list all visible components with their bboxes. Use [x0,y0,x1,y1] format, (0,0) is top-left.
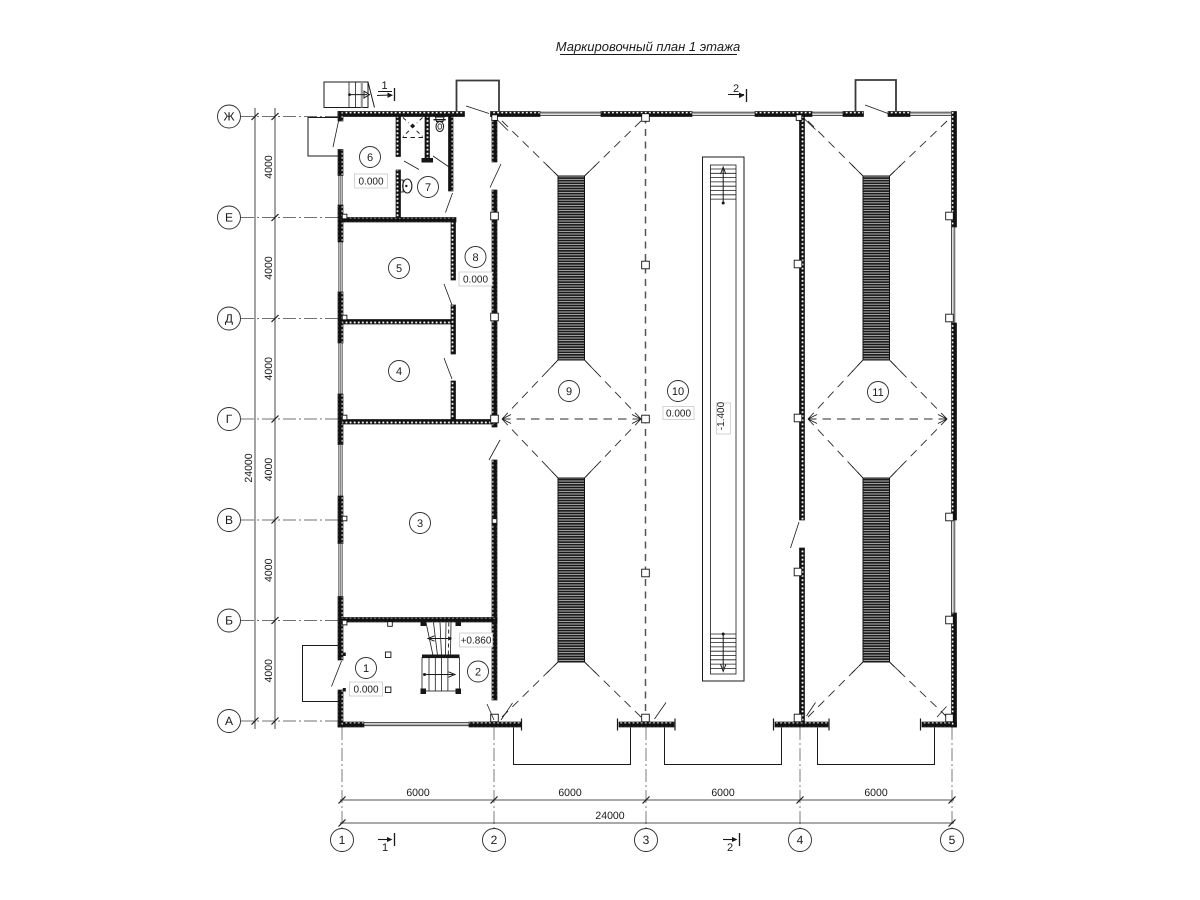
svg-text:6000: 6000 [406,787,430,799]
svg-text:2: 2 [733,83,739,95]
svg-text:1: 1 [339,833,346,847]
svg-text:Е: Е [225,211,233,225]
svg-text:А: А [225,714,233,728]
svg-text:В: В [225,513,233,527]
svg-text:24000: 24000 [243,453,255,482]
svg-text:0.000: 0.000 [463,275,488,286]
svg-text:Г: Г [226,412,233,426]
svg-text:11: 11 [872,387,883,399]
svg-text:Ж: Ж [223,110,234,124]
svg-text:+0.860: +0.860 [461,636,492,647]
svg-text:10: 10 [672,386,684,398]
svg-text:7: 7 [425,182,431,194]
svg-text:6000: 6000 [711,787,735,799]
svg-text:4000: 4000 [263,558,275,582]
svg-text:9: 9 [566,386,572,398]
svg-text:0.000: 0.000 [666,409,691,420]
svg-text:6: 6 [367,152,373,164]
svg-text:3: 3 [417,518,423,530]
svg-text:3: 3 [643,833,650,847]
svg-text:6000: 6000 [558,787,582,799]
svg-text:5: 5 [396,263,402,275]
svg-text:0.000: 0.000 [353,685,378,696]
svg-text:2: 2 [475,666,481,678]
svg-text:4000: 4000 [263,256,275,280]
svg-text:-1.400: -1.400 [716,401,727,430]
svg-text:1: 1 [382,842,388,854]
svg-text:24000: 24000 [595,810,624,822]
svg-text:2: 2 [727,842,733,854]
svg-text:2: 2 [491,833,498,847]
svg-text:5: 5 [949,833,956,847]
svg-text:Д: Д [225,312,233,326]
svg-text:4: 4 [396,366,402,378]
svg-text:4000: 4000 [263,155,275,179]
svg-text:1: 1 [363,663,369,675]
svg-text:4000: 4000 [263,659,275,683]
svg-text:8: 8 [472,252,478,264]
svg-text:1: 1 [381,80,387,92]
svg-text:6000: 6000 [864,787,888,799]
svg-text:4000: 4000 [263,458,275,482]
svg-text:Маркировочный план 1 этажа: Маркировочный план 1 этажа [556,39,741,54]
svg-text:Б: Б [225,614,233,628]
svg-text:4000: 4000 [263,357,275,381]
svg-text:4: 4 [797,833,804,847]
svg-text:0.000: 0.000 [358,177,383,188]
